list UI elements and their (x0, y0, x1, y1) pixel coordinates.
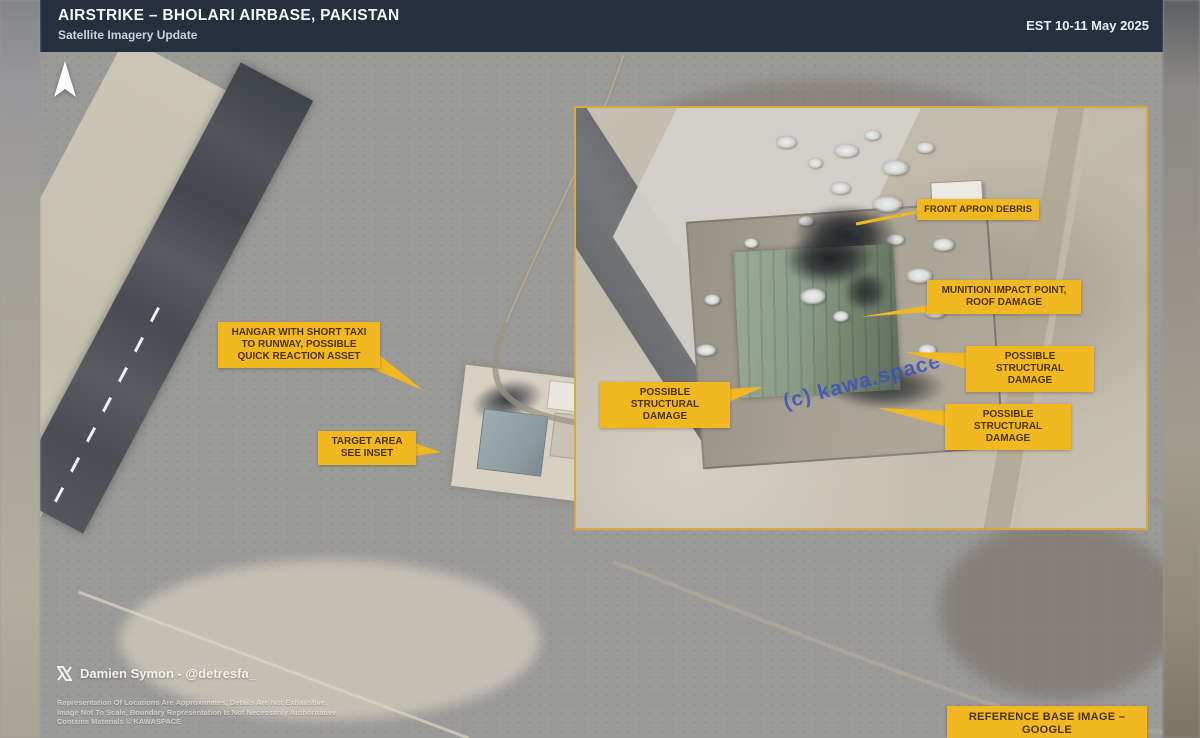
callout-structural-bottom: POSSIBLE STRUCTURAL DAMAGE (945, 404, 1071, 450)
callout-front-apron: FRONT APRON DEBRIS (917, 199, 1039, 220)
debris (830, 182, 850, 194)
disclaimer-line-2: Image Not To Scale, Boundary Representat… (57, 708, 336, 718)
author-name: Damien Symon - @detresfa_ (80, 666, 256, 681)
debris (932, 238, 954, 251)
header-wrap: AIRSTRIKE – BHOLARI AIRBASE, PAKISTAN Sa… (40, 0, 1163, 52)
debris (808, 158, 822, 168)
disclaimer-line-1: Representation Of Locations Are Approxim… (57, 698, 336, 708)
page-title: AIRSTRIKE – BHOLARI AIRBASE, PAKISTAN (58, 7, 400, 25)
callout-hangar: HANGAR WITH SHORT TAXI TO RUNWAY, POSSIB… (218, 322, 380, 368)
callout-structural-left: POSSIBLE STRUCTURAL DAMAGE (600, 382, 730, 428)
target-hangar (477, 408, 549, 476)
callout-munition: MUNITION IMPACT POINT, ROOF DAMAGE (927, 280, 1081, 314)
x-logo-icon (57, 666, 72, 681)
debris (696, 344, 716, 356)
author-credit: Damien Symon - @detresfa_ (57, 666, 256, 681)
debris (882, 160, 908, 175)
debris (916, 142, 934, 153)
header-bar: AIRSTRIKE – BHOLARI AIRBASE, PAKISTAN Sa… (40, 0, 1163, 52)
disclaimer-line-3: Contains Materials © KAWASPACE (57, 717, 336, 727)
infographic-page: (c) kawa.space HANGAR WITH SHORT TAXI TO… (0, 0, 1200, 738)
inset-road (979, 106, 1086, 530)
debris (744, 238, 758, 248)
inset-box: (c) kawa.space (574, 106, 1148, 530)
north-arrow-icon (52, 60, 78, 100)
page-subtitle: Satellite Imagery Update (58, 28, 197, 42)
left-blur-border (0, 0, 40, 738)
debris (776, 136, 796, 148)
debris (834, 144, 858, 157)
date-estimate: EST 10-11 May 2025 (1026, 18, 1149, 33)
callout-target-area: TARGET AREA SEE INSET (318, 431, 416, 465)
debris (704, 294, 720, 305)
callout-structural-right: POSSIBLE STRUCTURAL DAMAGE (966, 346, 1094, 392)
disclaimer: Representation Of Locations Are Approxim… (57, 698, 336, 727)
right-blur-border (1163, 0, 1200, 738)
reference-base-label: REFERENCE BASE IMAGE – GOOGLE (947, 706, 1147, 738)
debris (864, 130, 880, 140)
